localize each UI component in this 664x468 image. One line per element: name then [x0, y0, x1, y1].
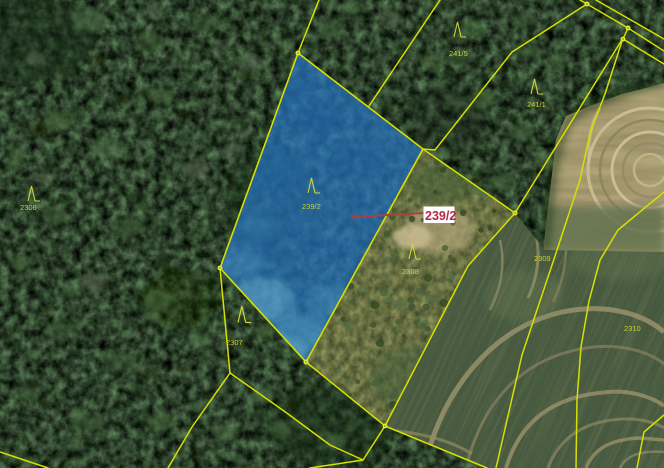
- svg-text:2308: 2308: [402, 267, 419, 276]
- svg-text:2307: 2307: [226, 338, 243, 347]
- svg-text:2306: 2306: [20, 203, 37, 212]
- svg-text:241/1: 241/1: [527, 100, 546, 109]
- svg-text:239/2: 239/2: [425, 209, 456, 223]
- svg-text:2310: 2310: [624, 324, 641, 333]
- svg-text:241/5: 241/5: [449, 49, 468, 58]
- svg-text:2309: 2309: [534, 254, 551, 263]
- svg-text:239/2: 239/2: [302, 202, 321, 211]
